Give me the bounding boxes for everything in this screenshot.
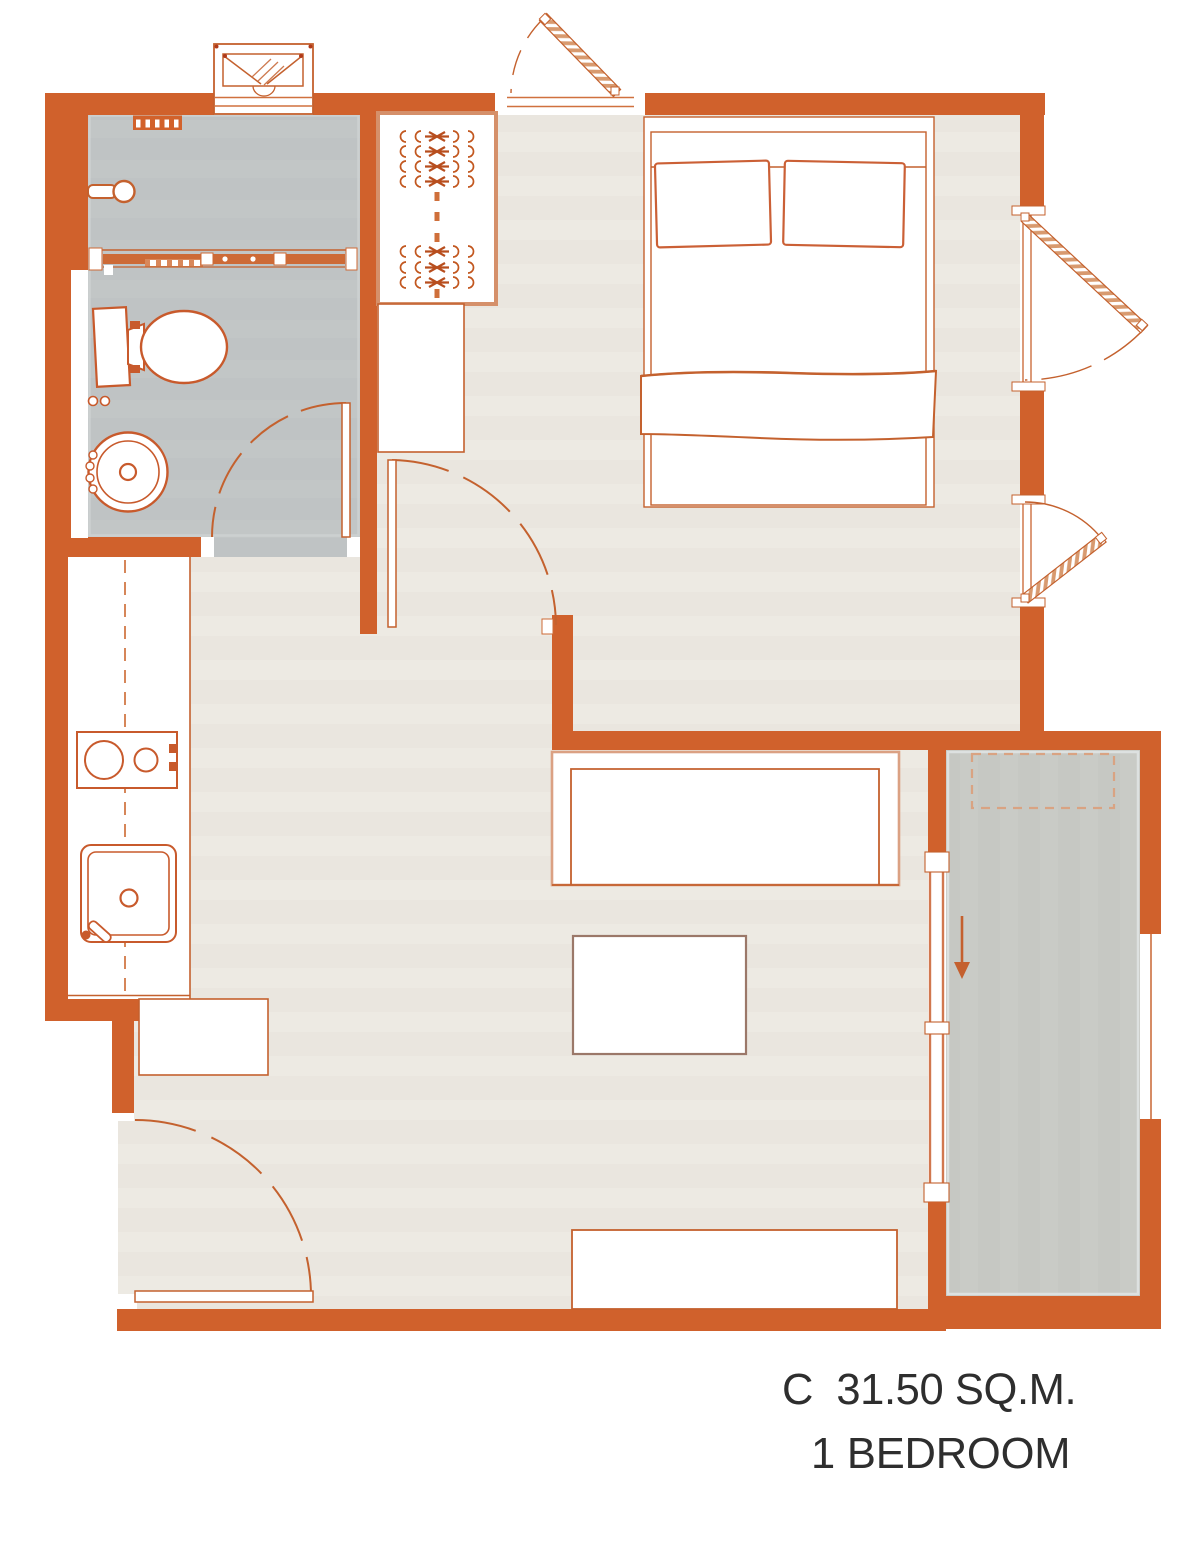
svg-text:C 31.50 SQ.M.: C 31.50 SQ.M. bbox=[782, 1366, 1076, 1414]
svg-text:1 BEDROOM: 1 BEDROOM bbox=[811, 1430, 1070, 1478]
